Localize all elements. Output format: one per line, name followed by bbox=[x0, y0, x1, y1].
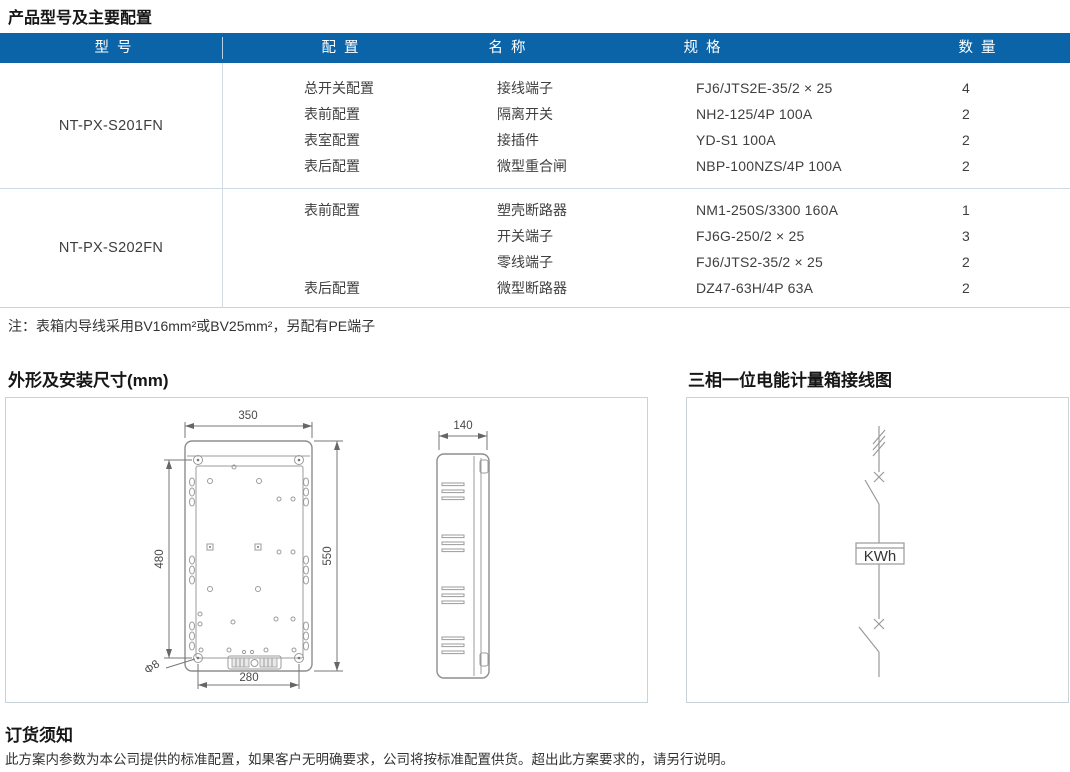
config-label: 总开关配置 bbox=[222, 75, 454, 101]
component-spec: NH2-125/4P 100A bbox=[654, 101, 904, 127]
col-header-model: 型 号 bbox=[94, 33, 133, 63]
dimensions-drawing: 350 480 550 280 Φ8 bbox=[6, 398, 647, 702]
spec-table: 型 号 配 置 名 称 规 格 数 量 NT-PX-S201FN 总开关配置 接… bbox=[0, 33, 1070, 308]
breaker-symbol-bottom bbox=[859, 564, 884, 677]
panel-holes bbox=[198, 465, 296, 654]
model-cell: NT-PX-S202FN bbox=[0, 189, 222, 307]
component-qty: 1 bbox=[904, 197, 1070, 223]
config-line: 总开关配置 接线端子 FJ6/JTS2E-35/2 × 25 4 bbox=[222, 75, 1070, 101]
component-spec: YD-S1 100A bbox=[654, 127, 904, 153]
component-name: 接线端子 bbox=[454, 75, 654, 101]
component-spec: FJ6G-250/2 × 25 bbox=[654, 223, 904, 249]
dim-480: 480 bbox=[154, 460, 192, 658]
svg-text:280: 280 bbox=[239, 672, 258, 684]
dimensions-section-title: 外形及安装尺寸(mm) bbox=[8, 366, 169, 391]
config-line: 零线端子 FJ6/JTS2-35/2 × 25 2 bbox=[222, 249, 1070, 275]
component-qty: 2 bbox=[904, 153, 1070, 179]
svg-text:480: 480 bbox=[154, 549, 166, 568]
breaker-symbol-top bbox=[865, 472, 884, 543]
config-label: 表后配置 bbox=[222, 275, 454, 301]
front-vent-louvres bbox=[190, 478, 309, 650]
dim-280: 280 bbox=[198, 664, 299, 689]
config-label: 表前配置 bbox=[222, 101, 454, 127]
body-column-divider bbox=[222, 63, 223, 308]
ordering-section-title: 订货须知 bbox=[5, 721, 73, 746]
model-cell: NT-PX-S201FN bbox=[0, 63, 222, 188]
table-header-row: 型 号 配 置 名 称 规 格 数 量 bbox=[0, 33, 1070, 63]
header-column-divider bbox=[222, 37, 223, 59]
component-spec: FJ6/JTS2-35/2 × 25 bbox=[654, 249, 904, 275]
component-spec: DZ47-63H/4P 63A bbox=[654, 275, 904, 301]
component-qty: 3 bbox=[904, 223, 1070, 249]
config-line: 表后配置 微型重合闸 NBP-100NZS/4P 100A 2 bbox=[222, 153, 1070, 179]
svg-text:550: 550 bbox=[322, 546, 334, 565]
config-line: 表前配置 隔离开关 NH2-125/4P 100A 2 bbox=[222, 101, 1070, 127]
component-spec: NM1-250S/3300 160A bbox=[654, 197, 904, 223]
component-name: 零线端子 bbox=[454, 249, 654, 275]
config-line: 表后配置 微型断路器 DZ47-63H/4P 63A 2 bbox=[222, 275, 1070, 301]
dim-550: 550 bbox=[314, 441, 343, 671]
component-spec: FJ6/JTS2E-35/2 × 25 bbox=[654, 75, 904, 101]
wiring-diagram-panel: KWh bbox=[686, 397, 1069, 703]
config-label: 表后配置 bbox=[222, 153, 454, 179]
component-qty: 2 bbox=[904, 127, 1070, 153]
component-name: 隔离开关 bbox=[454, 101, 654, 127]
energy-meter-symbol: KWh bbox=[856, 543, 904, 565]
config-line: 开关端子 FJ6G-250/2 × 25 3 bbox=[222, 223, 1070, 249]
config-label: 表室配置 bbox=[222, 127, 454, 153]
mounting-screws bbox=[194, 456, 304, 663]
config-label bbox=[222, 223, 454, 249]
meter-label: KWh bbox=[864, 548, 897, 565]
side-vent-louvres bbox=[442, 483, 464, 654]
svg-text:Φ8: Φ8 bbox=[142, 658, 162, 677]
wiring-diagram: KWh bbox=[687, 398, 1068, 702]
page-title: 产品型号及主要配置 bbox=[8, 4, 152, 28]
dim-350: 350 bbox=[185, 410, 312, 438]
config-label: 表前配置 bbox=[222, 197, 454, 223]
component-name: 微型断路器 bbox=[454, 275, 654, 301]
component-name: 接插件 bbox=[454, 127, 654, 153]
dim-hole-dia: Φ8 bbox=[142, 658, 195, 677]
dimensions-drawing-panel: 350 480 550 280 Φ8 bbox=[5, 397, 648, 703]
col-header-name: 名 称 bbox=[488, 33, 527, 63]
table-row: NT-PX-S201FN 总开关配置 接线端子 FJ6/JTS2E-35/2 ×… bbox=[0, 63, 1070, 188]
col-header-spec: 规 格 bbox=[683, 33, 722, 63]
ordering-text: 此方案内参数为本公司提供的标准配置，如果客户无明确要求，公司将按标准配置供货。超… bbox=[5, 750, 1005, 769]
component-qty: 2 bbox=[904, 249, 1070, 275]
dim-140: 140 bbox=[439, 420, 487, 450]
component-name: 塑壳断路器 bbox=[454, 197, 654, 223]
component-spec: NBP-100NZS/4P 100A bbox=[654, 153, 904, 179]
component-qty: 4 bbox=[904, 75, 1070, 101]
incoming-line bbox=[873, 426, 885, 472]
col-header-qty: 数 量 bbox=[958, 33, 997, 63]
table-row: NT-PX-S202FN 表前配置 塑壳断路器 NM1-250S/3300 16… bbox=[0, 188, 1070, 308]
col-header-config: 配 置 bbox=[321, 33, 360, 63]
svg-text:140: 140 bbox=[453, 420, 472, 432]
config-label bbox=[222, 249, 454, 275]
side-view: 140 bbox=[437, 420, 489, 678]
config-line: 表室配置 接插件 YD-S1 100A 2 bbox=[222, 127, 1070, 153]
component-qty: 2 bbox=[904, 275, 1070, 301]
component-name: 开关端子 bbox=[454, 223, 654, 249]
svg-text:350: 350 bbox=[238, 410, 257, 422]
wiring-note: 注：表箱内导线采用BV16mm²或BV25mm²，另配有PE端子 bbox=[8, 316, 375, 336]
component-qty: 2 bbox=[904, 101, 1070, 127]
component-name: 微型重合闸 bbox=[454, 153, 654, 179]
wiring-section-title: 三相一位电能计量箱接线图 bbox=[688, 366, 892, 391]
config-line: 表前配置 塑壳断路器 NM1-250S/3300 160A 1 bbox=[222, 197, 1070, 223]
